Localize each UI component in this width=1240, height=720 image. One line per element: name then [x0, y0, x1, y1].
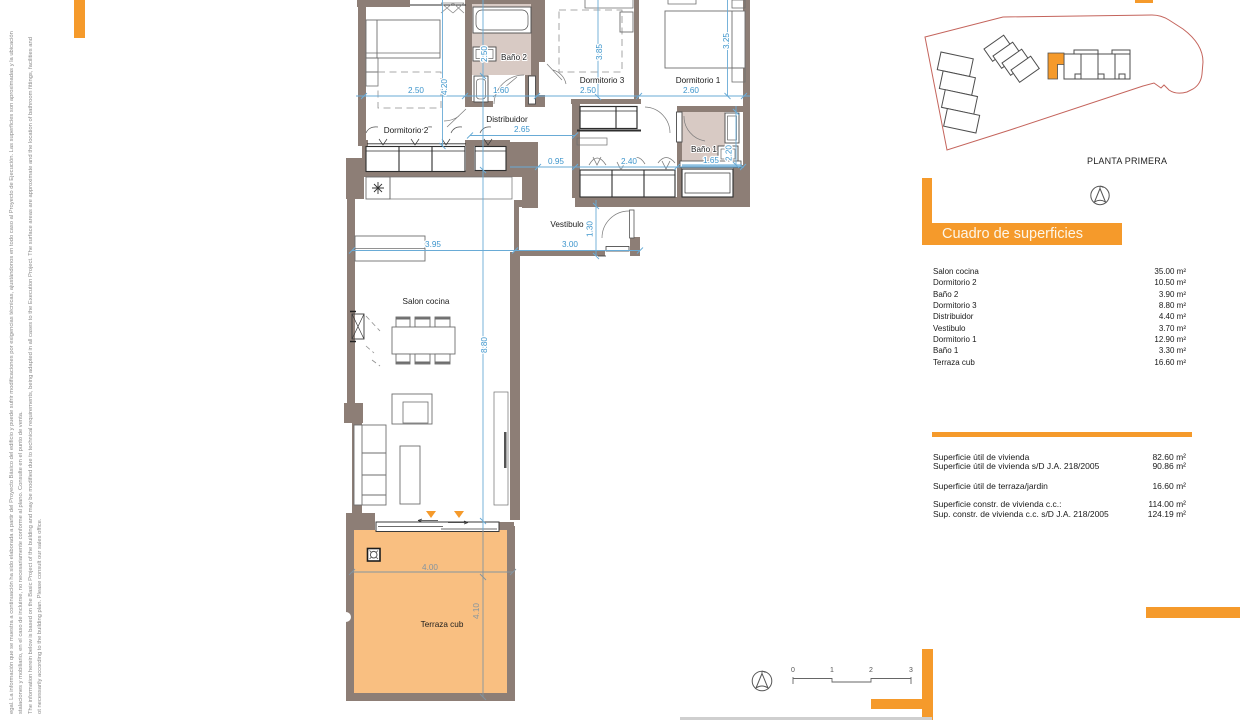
- svg-text:2.40: 2.40: [621, 157, 637, 166]
- svg-text:1: 1: [830, 667, 834, 674]
- svg-text:0: 0: [791, 667, 795, 674]
- svg-text:2: 2: [869, 667, 873, 674]
- svg-text:Terraza cub: Terraza cub: [421, 620, 464, 629]
- svg-text:Salon cocina: Salon cocina: [403, 297, 450, 306]
- svg-text:1.30: 1.30: [586, 221, 595, 237]
- svg-text:2.20: 2.20: [725, 145, 734, 161]
- svg-text:Baño 2: Baño 2: [501, 53, 527, 62]
- svg-text:Distribuidor: Distribuidor: [486, 115, 528, 124]
- svg-text:2.50: 2.50: [580, 86, 596, 95]
- svg-text:1.60: 1.60: [493, 86, 509, 95]
- svg-text:Dormitorio 3: Dormitorio 3: [580, 76, 625, 85]
- svg-text:1.65: 1.65: [703, 156, 719, 165]
- svg-text:Dormitorio 1: Dormitorio 1: [676, 76, 721, 85]
- svg-text:2.65: 2.65: [514, 125, 530, 134]
- svg-text:3.25: 3.25: [722, 33, 731, 49]
- svg-text:2.60: 2.60: [683, 86, 699, 95]
- svg-text:4.10: 4.10: [472, 603, 481, 619]
- svg-text:0.95: 0.95: [548, 157, 564, 166]
- svg-text:8.80: 8.80: [480, 337, 489, 353]
- svg-text:3.85: 3.85: [595, 44, 604, 60]
- svg-text:3.95: 3.95: [425, 240, 441, 249]
- svg-text:Baño 1: Baño 1: [691, 145, 717, 154]
- svg-text:4.00: 4.00: [422, 563, 438, 572]
- svg-text:Dormitorio 2: Dormitorio 2: [384, 126, 429, 135]
- svg-text:2.50: 2.50: [480, 46, 489, 62]
- svg-text:4.20: 4.20: [440, 79, 449, 95]
- svg-text:3: 3: [909, 667, 913, 674]
- svg-text:3.00: 3.00: [562, 240, 578, 249]
- svg-text:Vestibulo: Vestibulo: [550, 220, 584, 229]
- svg-text:2.50: 2.50: [408, 86, 424, 95]
